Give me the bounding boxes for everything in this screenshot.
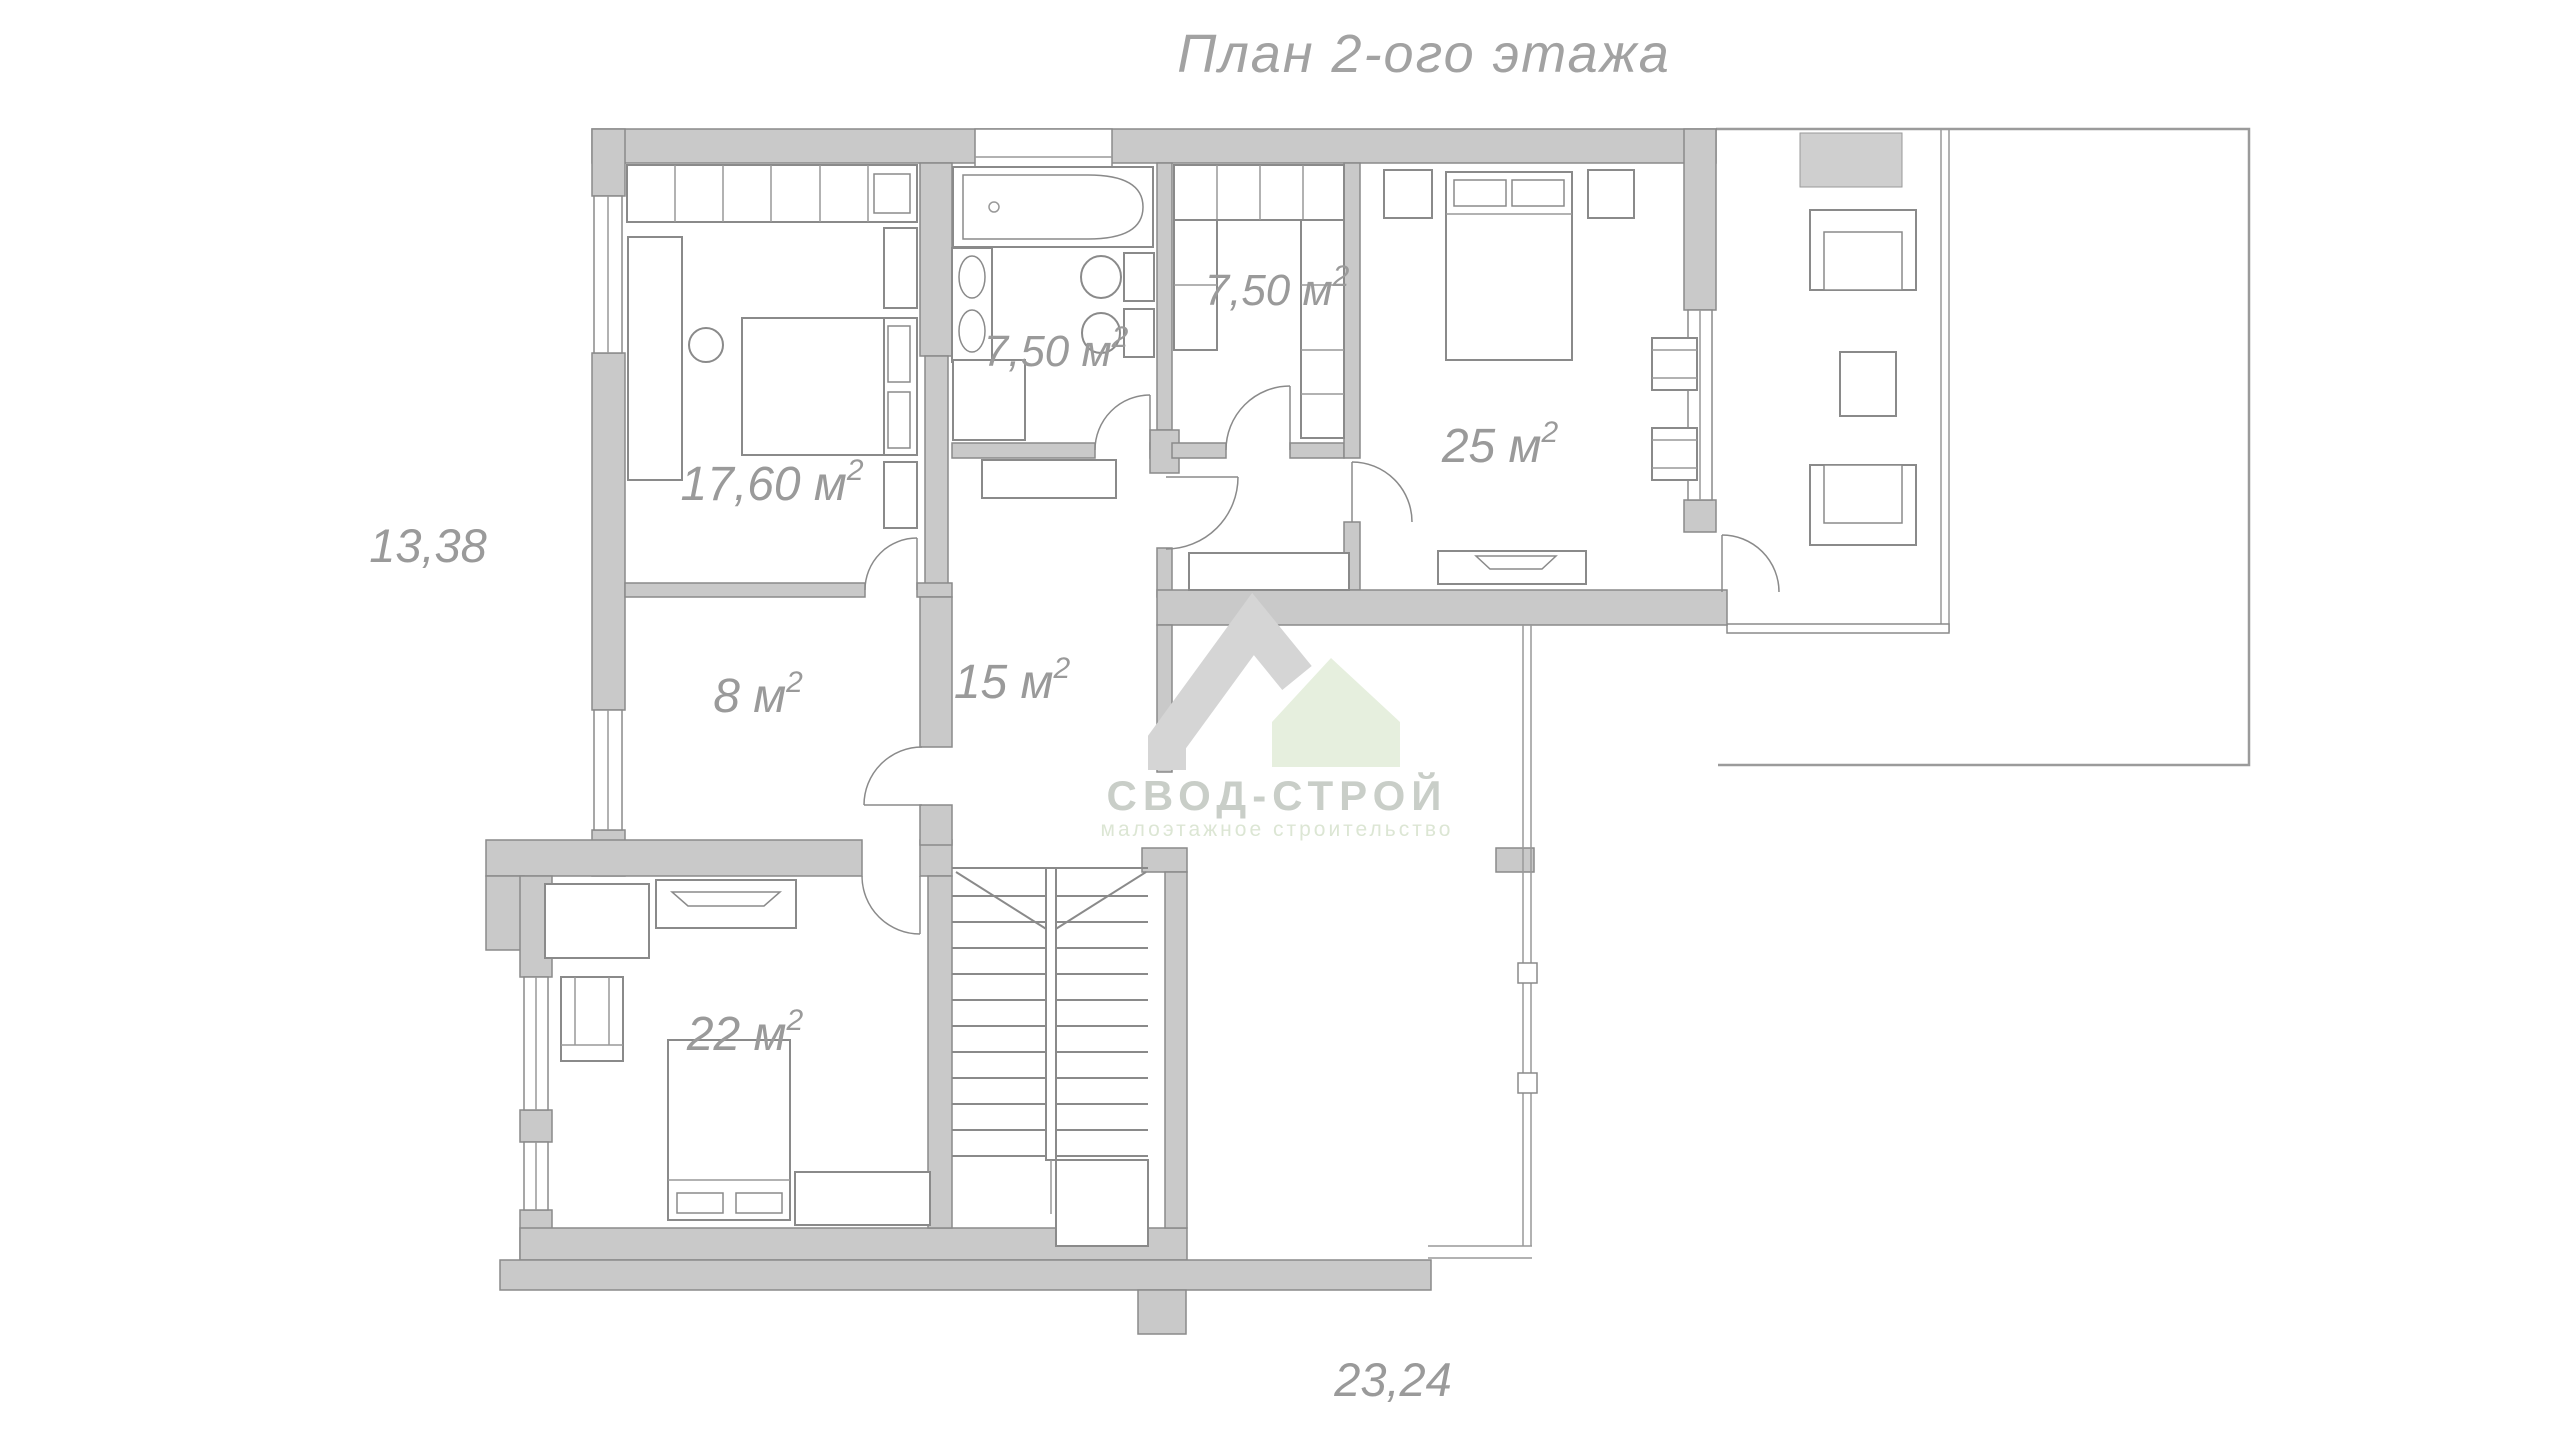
armchair xyxy=(1652,338,1697,390)
door-bathroom xyxy=(1095,395,1150,450)
corner-cabinet xyxy=(545,884,649,958)
nightstand xyxy=(1588,170,1634,218)
toilet-bowl xyxy=(1081,256,1121,298)
bathtub-basin xyxy=(963,175,1143,239)
stair-landing xyxy=(1056,1160,1148,1246)
window-wall-void-bottom xyxy=(1428,1246,1532,1258)
stool xyxy=(689,328,723,362)
sofa xyxy=(1810,210,1916,290)
page-title: План 2-ого этажа xyxy=(1177,24,1671,84)
closet-top-run xyxy=(1174,165,1344,220)
pillow xyxy=(1512,180,1564,206)
terrace-outline xyxy=(1716,129,2249,765)
fixtures-bathroom xyxy=(952,167,1154,440)
dimension-bottom: 23,24 xyxy=(1333,1353,1452,1406)
window-bedroom-3-left-2 xyxy=(524,1142,548,1210)
pillow xyxy=(888,326,910,382)
watermark-tagline: малоэтажное строительство xyxy=(1101,818,1454,841)
toilet-tank xyxy=(1124,309,1154,357)
pillow xyxy=(888,392,910,448)
room-label-bedroom-2: 25 м2 xyxy=(1441,416,1559,473)
room-label-bedroom-1: 17,60 м2 xyxy=(680,454,863,511)
window-bedroom-1-left xyxy=(594,196,622,353)
closet-right-run xyxy=(1301,220,1344,438)
bed-drawer xyxy=(677,1193,723,1213)
coffee-table xyxy=(1840,352,1896,416)
furniture-balcony xyxy=(1800,133,1916,545)
door-bedroom-1 xyxy=(865,538,917,590)
bed-drawer xyxy=(736,1193,782,1213)
closet-box xyxy=(1384,170,1432,218)
nightstand xyxy=(884,228,917,308)
sofa xyxy=(1810,465,1916,545)
room-label-bedroom-3: 22 м2 xyxy=(686,1004,804,1061)
room-label-hall: 15 м2 xyxy=(954,652,1071,709)
nook-cabinet xyxy=(1189,553,1349,590)
dimension-left: 13,38 xyxy=(369,519,487,572)
tv-icon xyxy=(672,892,780,906)
bench xyxy=(795,1172,930,1225)
furniture-bedroom-2 xyxy=(1384,170,1697,584)
door-balcony xyxy=(1722,535,1779,592)
bed xyxy=(742,318,884,455)
watermark: СВОД-СТРОЙ малоэтажное строительство xyxy=(1101,624,1454,841)
sink xyxy=(959,310,985,352)
door-bedroom-3 xyxy=(862,876,920,934)
room-label-storage: 8 м2 xyxy=(713,666,803,723)
bath-niche xyxy=(975,129,1112,167)
toilet-tank xyxy=(1124,253,1154,301)
nightstand xyxy=(884,462,917,528)
floor-plan: План 2-ого этажа 13,38 23,24 xyxy=(0,0,2550,1440)
door-wardrobe xyxy=(1226,386,1290,450)
armchair xyxy=(561,977,623,1061)
window-bedroom-3-left-1 xyxy=(524,977,548,1110)
door-hall-nook xyxy=(1166,477,1238,549)
pillow xyxy=(1454,180,1506,206)
room-label-wardrobe: 7,50 м2 xyxy=(1205,260,1350,315)
tall-cabinet xyxy=(628,237,682,480)
tv-icon xyxy=(1476,556,1556,569)
console-shelf xyxy=(982,460,1116,498)
watermark-name: СВОД-СТРОЙ xyxy=(1107,771,1448,819)
window-wall-void xyxy=(1518,625,1537,1246)
door-storage xyxy=(864,747,922,805)
room-label-bathroom: 7,50 м2 xyxy=(984,321,1129,376)
awning-block xyxy=(1800,133,1902,187)
staircase xyxy=(952,868,1148,1246)
stair-railing xyxy=(1046,868,1056,1160)
window-storage-left xyxy=(594,710,622,830)
armchair xyxy=(1652,428,1697,480)
sink xyxy=(959,256,985,298)
door-bedroom-2 xyxy=(1352,462,1412,522)
